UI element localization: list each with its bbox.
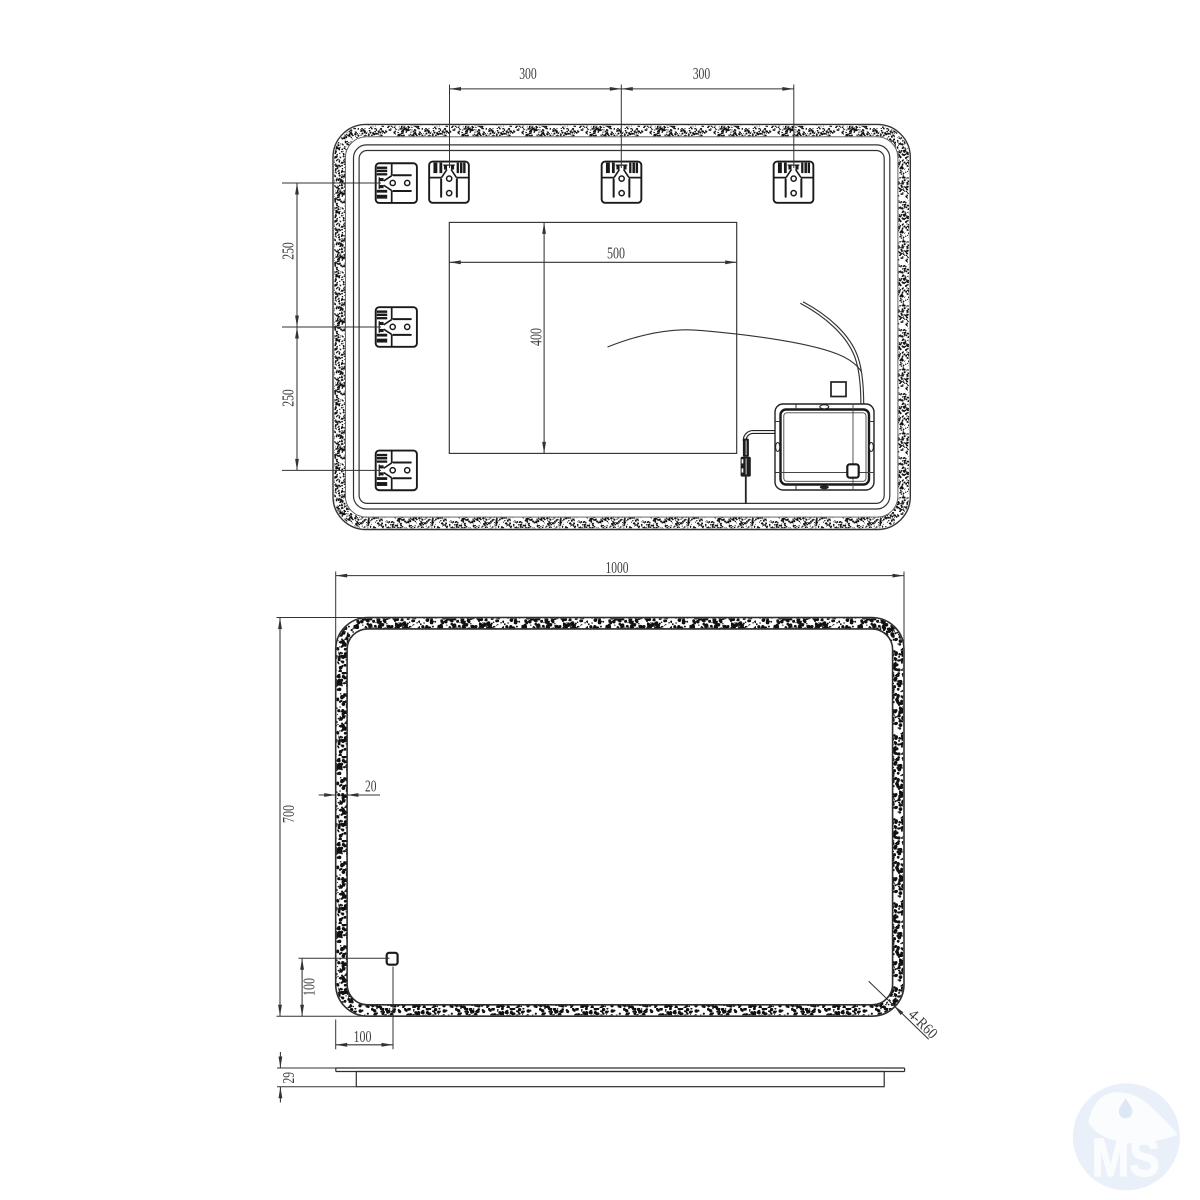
svg-text:29: 29	[279, 1072, 298, 1084]
svg-text:100: 100	[354, 1027, 372, 1046]
svg-text:250: 250	[279, 389, 298, 407]
svg-text:500: 500	[607, 244, 625, 263]
svg-text:100: 100	[300, 978, 319, 996]
svg-text:250: 250	[279, 242, 298, 260]
svg-text:MS: MS	[1092, 1128, 1160, 1188]
svg-text:1000: 1000	[606, 558, 629, 577]
svg-text:300: 300	[519, 64, 537, 83]
svg-text:20: 20	[365, 777, 377, 796]
svg-text:400: 400	[527, 328, 546, 346]
svg-text:700: 700	[279, 805, 298, 823]
svg-text:300: 300	[693, 64, 711, 83]
